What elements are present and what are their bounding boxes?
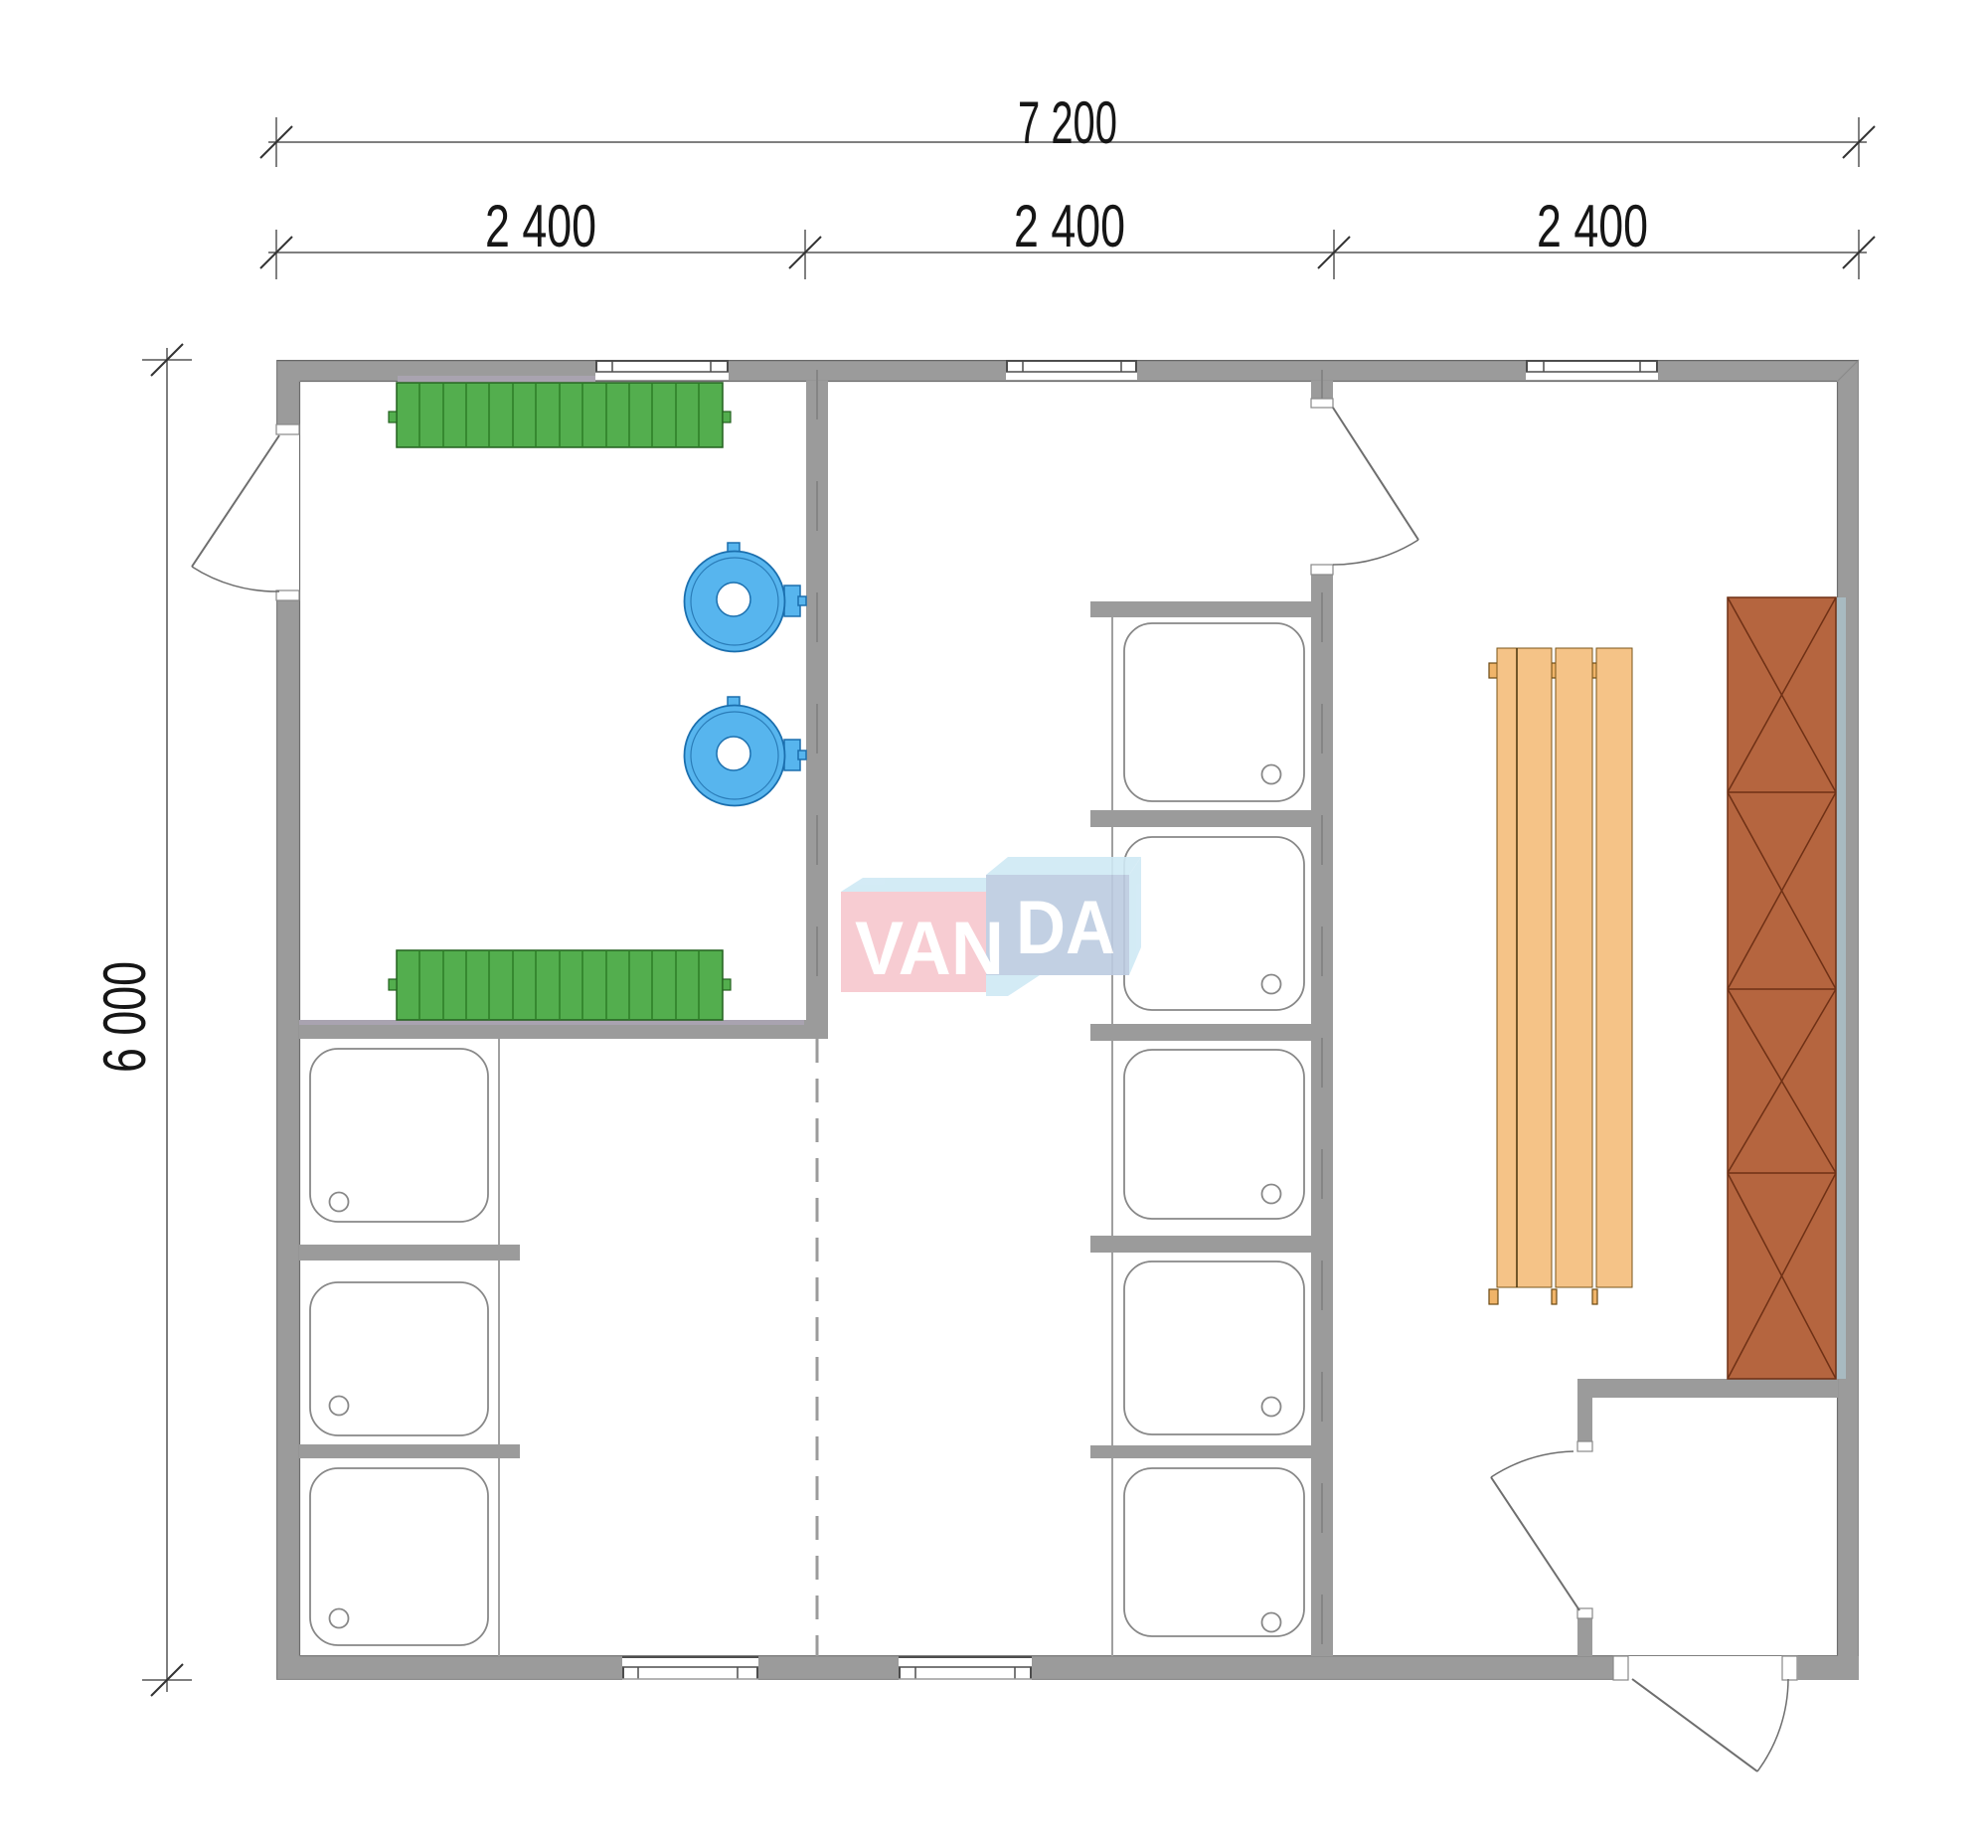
svg-text:2 400: 2 400 bbox=[485, 193, 596, 259]
svg-text:DA: DA bbox=[1016, 886, 1115, 970]
svg-text:6 000: 6 000 bbox=[91, 961, 158, 1073]
svg-text:VAN: VAN bbox=[855, 907, 1004, 991]
svg-text:2 400: 2 400 bbox=[1537, 193, 1648, 259]
svg-text:7 200: 7 200 bbox=[1018, 89, 1117, 156]
svg-text:2 400: 2 400 bbox=[1014, 193, 1125, 259]
